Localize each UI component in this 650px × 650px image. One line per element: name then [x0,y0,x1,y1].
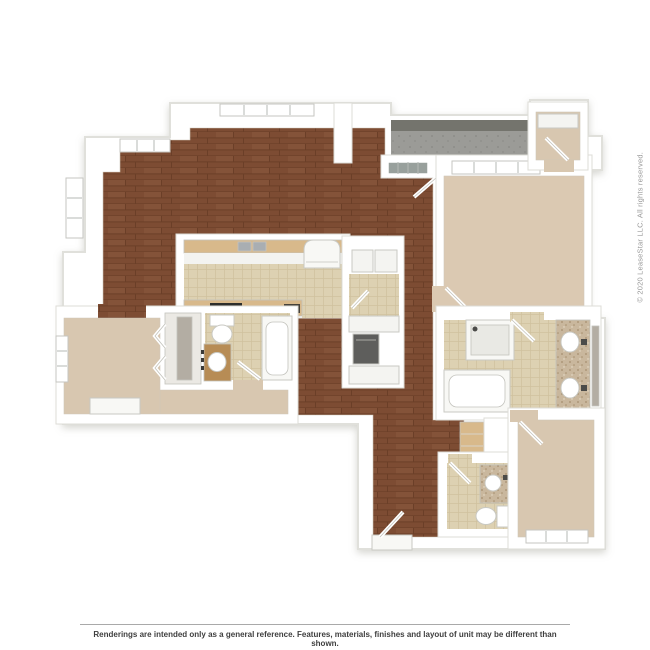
den-opening [98,304,146,318]
balcony-wall [381,155,443,178]
kitchen [176,234,350,318]
bath2-sink [208,353,226,372]
upper-cabinet [352,250,373,272]
toilet-bowl [212,325,232,343]
closet-shelf [538,114,578,128]
vanity-mirror [592,326,599,406]
balcony-floor [391,131,530,158]
kitchen-sink-basin [238,242,251,251]
den-window [56,336,68,382]
upper-cabinet [375,250,397,272]
bedroom-top-right-floor [444,176,584,314]
faucet [503,475,508,480]
bedroom-door-opening [510,410,538,422]
window-bay-step [120,139,170,152]
closet-door-opening [544,160,574,172]
bath3-sink [485,475,501,491]
bath2-door-opening [233,380,263,392]
den-and-bath2 [56,304,298,424]
vanity-knob [201,366,204,370]
toilet-tank [210,315,234,326]
bedroom-top-right [432,155,592,322]
toilet-tank [497,506,508,527]
shower-head [473,327,478,332]
floor-plan-page: { "annotations": { "copyright": "© 2020 … [0,0,650,650]
toilet-bowl [476,508,496,525]
kitchen-sink-basin [253,242,266,251]
floor-plan [0,0,650,650]
balcony-parapet-face [391,120,530,131]
entry-closet [528,102,588,172]
laundry-closet [342,236,404,388]
washer-dryer [353,334,379,364]
vanity-knob [201,358,204,362]
vanity-sink [561,332,579,352]
laundry-lower-shelf [349,366,399,384]
master-bathroom [436,306,601,420]
laundry-counter [349,316,399,332]
closet-mirror [177,317,192,380]
window-bench [90,398,140,414]
faucet [581,339,587,345]
disclaimer-text: Renderings are intended only as a genera… [80,624,570,648]
entry-threshold [372,535,412,550]
bedroom-window [526,530,588,543]
bedroom-bottom-right-floor [518,420,594,537]
vanity-sink [561,378,579,398]
bathtub-basin [266,322,288,375]
faucet [581,385,587,391]
kitchen-floor-opening [302,264,344,318]
vanity-knob [201,350,204,354]
wall-pillar [334,103,352,163]
refrigerator [304,240,340,268]
copyright-text: © 2020 LeaseStar LLC. All rights reserve… [636,152,645,303]
laundry-floor [349,274,399,316]
bathroom3 [438,452,518,537]
bedroom-bottom-right [508,408,605,549]
master-bathtub-basin [449,375,505,407]
window-left-tall [66,178,83,238]
balcony [391,120,530,158]
